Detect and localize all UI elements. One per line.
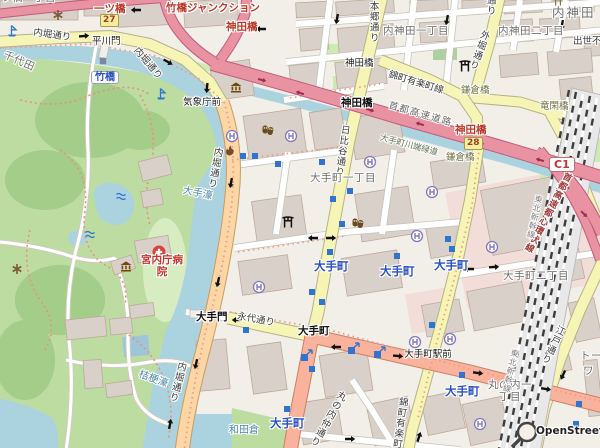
area-hitotsubashi-1chome: 一ツ橋一丁目	[0, 0, 56, 5]
station-takebashi: 竹橋	[91, 71, 119, 84]
jct-otemachi: 大手町	[298, 326, 330, 338]
route-shield-27: 27	[100, 14, 119, 27]
exit-kandabashi-north: 神田橋	[226, 22, 258, 34]
station-otemachi-2: 大手町	[380, 265, 415, 278]
route-shield-c1: C1	[549, 157, 575, 172]
map-canvas[interactable]: 一ツ橋一丁目一ツ橋竹橋ジャンクション神田橋内堀通り平川門千代田内堀通り竹橋気象庁…	[0, 0, 600, 448]
road-hibiya-dori: 日比谷通り	[332, 124, 350, 177]
exit-kandabashi-south: 神田橋	[455, 125, 487, 137]
road-uchibori-dori-ne: 内堀通り	[131, 46, 164, 82]
jct-otemachi-ekimae: 大手町駅前	[404, 350, 452, 361]
gate-hirakawamon: 平川門	[92, 37, 121, 48]
road-marunouchi-naka-dori: 丸の内仲通り	[307, 388, 348, 448]
water-kikyobori: 桔梗濠	[137, 369, 169, 390]
exit-hitotsubashi: 一ツ橋	[94, 4, 126, 16]
road-nishikicho-yurakucho-line-n: 錦町有楽町線	[387, 70, 445, 97]
area-otemachi-1chome: 大手町一丁目	[310, 173, 376, 185]
area-otemachi-2chome: 大手町二丁目	[503, 271, 569, 283]
area-marunouchi-1chome: 丸の内一丁目	[486, 380, 534, 404]
hwy-shuto-inner-circular: 首都高速都心環状線	[522, 170, 573, 254]
path-otemachi-kawabata-ryokudo: 大手町川端緑道	[379, 134, 439, 159]
partial-label-wa: ワ	[583, 366, 594, 378]
road-uchibori-dori-nw: 内堀通り	[33, 28, 72, 44]
labels-layer: 一ツ橋一丁目一ツ橋竹橋ジャンクション神田橋内堀通り平川門千代田内堀通り竹橋気象庁…	[0, 0, 600, 448]
route-shield-28: 28	[464, 137, 483, 150]
road-sotobori-dori-top: 外堀通り	[484, 0, 495, 16]
road-uchibori-dori-c: 内堀通り	[205, 146, 223, 189]
road-edo-dori: 江戸通り	[538, 323, 566, 365]
road-nishikicho-yurakucho-line-s: 錦町有楽町線	[388, 396, 407, 448]
poi-kunaicho-hospital: 宮内庁病院	[138, 255, 186, 279]
area-uchikanda-1chome: 内神田一丁目	[383, 26, 449, 38]
jct-kandabashi: 神田橋	[341, 98, 373, 110]
osm-attribution[interactable]: OpenStreetMap	[536, 426, 600, 438]
bridge-kamakurabashi-s: 鎌倉橋	[446, 153, 475, 164]
rail-tohoku-shinkansen-n: 東北新幹線	[525, 194, 543, 240]
bridge-kandabashi: 神田橋	[345, 59, 374, 70]
jct-takebashi-junction: 竹橋ジャンクション	[166, 3, 260, 15]
road-eitai-dori: 永代通り	[236, 312, 275, 329]
bridge-kamakurabashi-n: 鎌倉橋	[461, 86, 490, 97]
area-chiyoda: 千代田	[1, 50, 36, 74]
jct-kishochomae: 気象庁前	[183, 98, 221, 109]
bridge-ryukanbashi: 竜閑橋	[540, 102, 569, 113]
gate-otemon: 大手門	[196, 312, 228, 324]
rail-tohoku-shinkansen-s: 東北新幹線	[501, 348, 519, 394]
hwy-shuto-expressway: 首都高速道路	[387, 101, 453, 129]
road-sotobori-dori: 外堀通り	[466, 28, 490, 71]
area-uchikanda: 内神田	[552, 6, 596, 20]
station-otemachi-4: 大手町	[445, 385, 480, 398]
road-hongo-dori: 本郷通り	[367, 1, 378, 43]
station-otemachi-5: 大手町	[270, 417, 305, 430]
station-otemachi-1: 大手町	[314, 260, 349, 273]
road-shussefudo-dori: 出世不動通り	[573, 37, 600, 48]
water-otebori: 大手濠	[182, 185, 214, 202]
station-otemachi-3: 大手町	[434, 259, 469, 272]
area-uchikanda-2chome: 内神田二丁目	[498, 26, 564, 38]
water-wadakura: 和田倉	[229, 425, 259, 436]
partial-label-to: トー	[580, 351, 600, 363]
road-uchibori-dori-s: 内堀通り	[166, 360, 186, 403]
